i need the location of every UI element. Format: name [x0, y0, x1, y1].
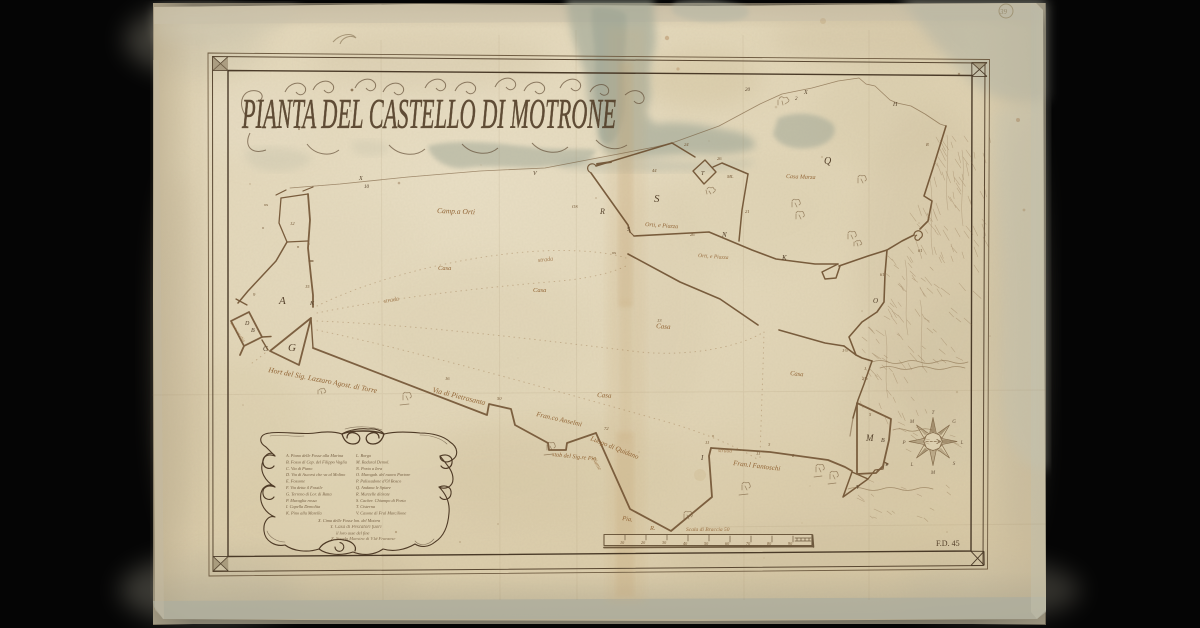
svg-text:72: 72 — [604, 426, 609, 431]
svg-text:N: N — [721, 231, 727, 239]
svg-text:Q. Andana le Spiare: Q. Andana le Spiare — [356, 485, 391, 490]
svg-text:G. Terreno di Lor. di Batta: G. Terreno di Lor. di Batta — [286, 491, 332, 496]
svg-text:V. Casone di Fral Marcilione: V. Casone di Fral Marcilione — [356, 511, 406, 516]
svg-text:B: B — [251, 328, 255, 334]
svg-text:Casa: Casa — [597, 391, 612, 400]
svg-text:2½: 2½ — [862, 376, 868, 381]
svg-text:L: L — [910, 463, 914, 468]
svg-text:os: os — [264, 202, 268, 207]
svg-text:11: 11 — [705, 440, 709, 445]
svg-text:B: B — [881, 438, 885, 444]
svg-text:Scala di Braccia 50: Scala di Braccia 50 — [686, 527, 730, 533]
svg-text:K: K — [781, 254, 787, 262]
svg-text:X: X — [803, 90, 808, 96]
svg-text:D. Via di Ascorsi che va al Mo: D. Via di Ascorsi che va al Molino — [285, 472, 346, 477]
svg-text:B. Fosso di Cap. del Filippo V: B. Fosso di Cap. del Filippo Vaglia — [286, 459, 347, 464]
svg-text:Camp.a Orti: Camp.a Orti — [437, 206, 475, 216]
svg-text:M: M — [930, 471, 936, 476]
svg-text:A: A — [278, 295, 286, 307]
svg-text:X. Cima delle Fosse lon. del M: X. Cima delle Fosse lon. del Motera — [317, 518, 380, 523]
svg-text:A. Piano delle Fosse alla Mari: A. Piano delle Fosse alla Marina — [285, 453, 343, 458]
svg-text:R: R — [599, 207, 605, 216]
svg-text:H: H — [892, 102, 898, 108]
svg-text:G: G — [952, 420, 956, 425]
svg-text:Casa: Casa — [656, 322, 671, 331]
svg-text:PIANTA DEL CASTELLO DI MOTRONE: PIANTA DEL CASTELLO DI MOTRONE — [241, 92, 616, 138]
svg-text:F. Via detta il Fossile: F. Via detta il Fossile — [285, 485, 323, 490]
svg-text:Casa Marza: Casa Marza — [786, 174, 816, 181]
svg-text:C: C — [263, 345, 268, 353]
svg-text:N. Porta a Iera: N. Porta a Iera — [355, 466, 382, 471]
svg-text:C. Via di Piano: C. Via di Piano — [286, 466, 313, 471]
svg-text:O. Murogab. del nuovo Partore: O. Murogab. del nuovo Partore — [356, 472, 410, 477]
svg-text:K. Pino alla Marella: K. Pino alla Marella — [285, 511, 322, 516]
svg-text:26: 26 — [690, 232, 695, 237]
svg-text:il loro asse del fine: il loro asse del fine — [336, 531, 370, 536]
svg-text:S. Cacher. Chiampo di Porta: S. Cacher. Chiampo di Porta — [356, 498, 406, 503]
svg-text:Y. Casa di Pescatori fuori: Y. Casa di Pescatori fuori — [330, 525, 382, 530]
svg-text:61: 61 — [880, 272, 885, 277]
svg-text:50: 50 — [497, 396, 502, 401]
svg-text:M: M — [865, 433, 874, 443]
svg-text:O: O — [873, 297, 878, 305]
svg-text:F.D. 45: F.D. 45 — [936, 539, 960, 548]
svg-text:24: 24 — [684, 142, 689, 147]
svg-text:T. Cisterna: T. Cisterna — [356, 504, 375, 509]
svg-text:L. Borgo: L. Borgo — [355, 453, 372, 458]
svg-text:26: 26 — [717, 156, 722, 161]
svg-text:os: os — [612, 250, 616, 255]
svg-text:R. Murzelle ditirate: R. Murzelle ditirate — [355, 491, 390, 496]
svg-text:21: 21 — [745, 209, 750, 214]
svg-text:G: G — [288, 342, 296, 354]
svg-text:ML: ML — [726, 174, 734, 179]
svg-text:P. Palissadone d'Ol Bosco: P. Palissadone d'Ol Bosco — [355, 479, 402, 484]
svg-text:15: 15 — [305, 284, 310, 289]
svg-text:39: 39 — [999, 8, 1008, 16]
svg-text:S: S — [654, 193, 660, 205]
svg-text:1: 1 — [864, 366, 866, 371]
svg-text:M. Radural Demol.: M. Radural Demol. — [355, 459, 389, 464]
svg-text:E. Fossone: E. Fossone — [285, 479, 305, 484]
svg-text:44: 44 — [652, 168, 657, 173]
svg-text:20: 20 — [745, 88, 751, 93]
svg-text:R.: R. — [649, 525, 656, 532]
svg-text:Casa: Casa — [533, 287, 546, 294]
svg-text:12: 12 — [290, 221, 295, 226]
svg-text:16: 16 — [445, 376, 450, 381]
svg-text:Casa: Casa — [790, 370, 804, 378]
svg-text:OS: OS — [572, 204, 578, 209]
svg-text:Z. Strada Maestra di V.la Fran: Z. Strada Maestra di V.la Franzese — [331, 536, 395, 541]
svg-text:10: 10 — [364, 185, 370, 190]
svg-text:Casa: Casa — [438, 265, 451, 272]
svg-text:5: 5 — [627, 227, 630, 233]
svg-text:R: R — [925, 142, 929, 147]
svg-text:P. Muraglia rossa: P. Muraglia rossa — [285, 498, 317, 503]
svg-text:D: D — [244, 321, 250, 327]
svg-text:I. Capella Demolita: I. Capella Demolita — [285, 504, 320, 509]
svg-text:M: M — [909, 420, 915, 425]
svg-text:61: 61 — [918, 248, 923, 253]
svg-text:Q: Q — [824, 156, 832, 167]
svg-text:P: P — [901, 441, 905, 446]
svg-text:strada: strada — [718, 448, 733, 454]
svg-text:1½: 1½ — [842, 348, 848, 353]
svg-text:11: 11 — [756, 451, 760, 456]
svg-text:L: L — [960, 441, 964, 446]
svg-text:X: X — [358, 176, 363, 182]
